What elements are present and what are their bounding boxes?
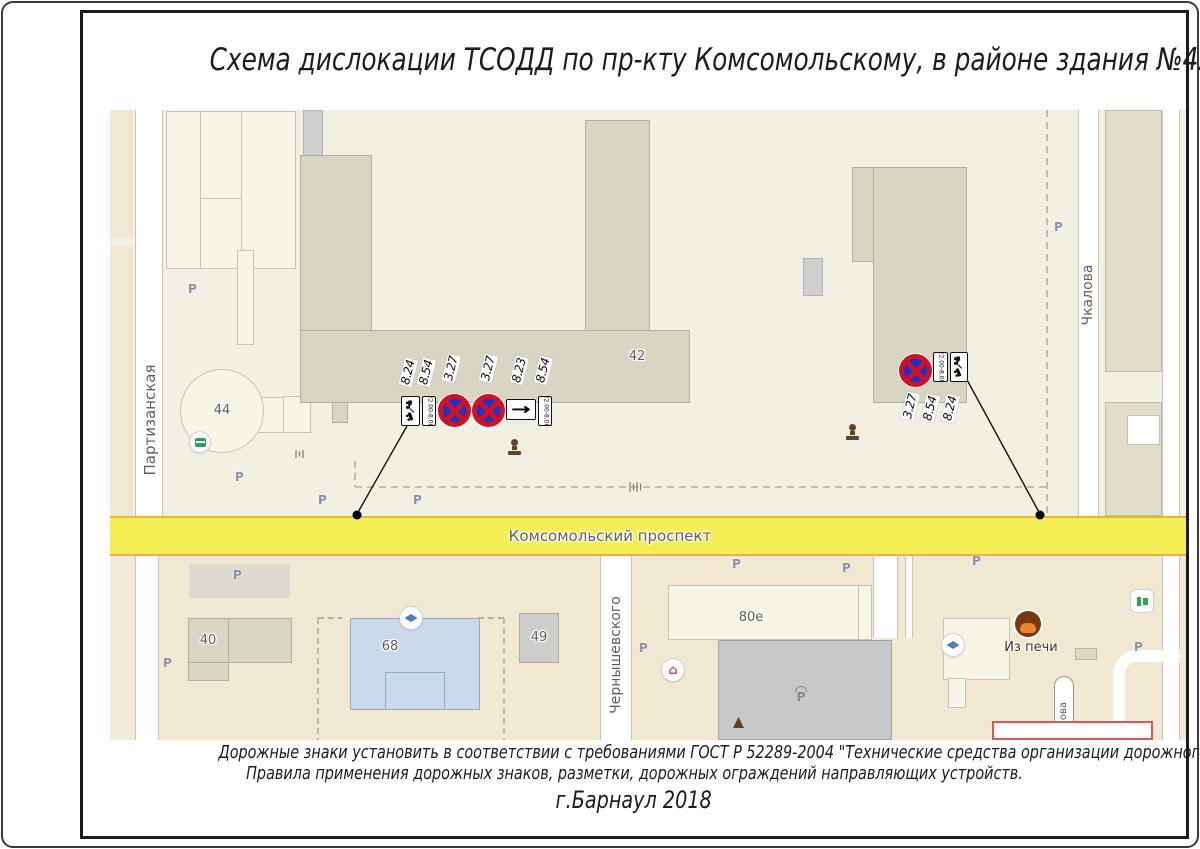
building-80e-wing	[858, 585, 872, 640]
parking-marker: P	[188, 282, 197, 296]
bus-stop-icon	[190, 432, 210, 452]
time-plate-text: 22.00-8.00	[542, 396, 548, 426]
parking-marker: P	[732, 557, 741, 571]
building-40-wing	[188, 662, 229, 681]
parking-marker: P	[1054, 220, 1063, 234]
building-68-notch	[385, 672, 445, 710]
building-40-wing	[228, 618, 292, 663]
time-plate-text: 22.00-8.00	[426, 396, 432, 426]
monument-icon	[507, 439, 521, 457]
scheme-sheet: { "title": "Схема дислокации ТСОДД по пр…	[0, 0, 1200, 849]
city-block	[200, 111, 242, 199]
time-plate-text: 22.00-8.00	[938, 352, 944, 382]
time-plate: 22.00-8.00	[538, 396, 552, 426]
street-label-partizanskaya: Партизанская	[141, 340, 157, 500]
leader-line-right	[966, 378, 1040, 514]
building-40-label: 40	[188, 633, 228, 648]
tall-building-wing	[852, 167, 875, 262]
right-block	[1105, 110, 1162, 372]
city-block	[166, 111, 201, 269]
building-49-label: 49	[519, 630, 559, 645]
street-label-chkalova: Чкалова	[1080, 240, 1096, 350]
graduation-cap-glyph	[405, 614, 418, 622]
footer-note-line1: Дорожные знаки установить в соответствии…	[84, 742, 1184, 763]
house-glyph: ⌂	[668, 664, 677, 677]
street-partizanskaya-lower	[135, 556, 159, 740]
right-block-court	[1127, 415, 1160, 445]
footer-city-year: г.Барнаул 2018	[84, 786, 1184, 814]
map-canvas: 44 42 40 68 49 ⌂ 80е P Из печи	[110, 110, 1186, 740]
zone-extent-arrow-plate: →	[506, 399, 536, 420]
bakery-icon	[1015, 611, 1041, 637]
edge-street	[1162, 110, 1180, 516]
parking-marker: P	[972, 554, 981, 568]
footer-note-line2: Правила применения дорожных знаков, разм…	[84, 763, 1184, 784]
tow-truck-plate	[401, 396, 420, 426]
shop-icon	[1131, 590, 1153, 612]
city-block	[241, 111, 296, 269]
building-42-left-wing	[300, 155, 372, 331]
tow-truck-icon	[954, 355, 965, 379]
gate-ticks	[296, 450, 641, 492]
parking-marker: P	[1134, 640, 1143, 654]
city-block	[237, 250, 254, 345]
bakery-label: Из печи	[991, 640, 1071, 655]
parking-marker: P	[639, 641, 648, 655]
bus-glyph	[195, 438, 206, 447]
parking-marker: P	[163, 656, 172, 670]
right-arrow-icon: →	[511, 401, 531, 417]
parking-marker: P	[318, 493, 327, 507]
tow-truck-icon	[405, 399, 416, 423]
street-label-komsomolsky: Комсомольский проспект	[460, 527, 760, 545]
building-44-label: 44	[202, 403, 242, 418]
building-42-right-wing	[585, 120, 650, 331]
bakery-building-wing	[948, 678, 966, 708]
bottle-glyph	[1143, 598, 1148, 605]
school-icon-2	[942, 634, 964, 656]
building-42-annex	[332, 402, 348, 423]
parking-marker: P	[233, 568, 242, 582]
parking-marker: P	[842, 561, 851, 575]
small-building	[1075, 648, 1097, 660]
school-icon	[400, 607, 422, 629]
city-block	[200, 198, 242, 269]
edge-building-strip	[110, 556, 133, 740]
map-callout-box	[992, 721, 1153, 740]
covered-parking-icon: P	[794, 686, 808, 704]
graduation-cap-glyph	[947, 641, 960, 649]
leader-line-left	[357, 426, 407, 514]
no-stopping-sign	[438, 394, 471, 427]
building-42-label: 42	[617, 349, 657, 364]
street-label-partial: ова	[1058, 686, 1070, 736]
tow-truck-plate	[950, 352, 968, 382]
parking-marker: P	[235, 470, 244, 484]
street-label-chernyshevskogo: Чернышевского	[608, 570, 624, 740]
edge-building-strip	[110, 246, 133, 516]
side-road-lane	[905, 556, 913, 638]
bottle-glyph	[1137, 597, 1141, 606]
building-80e-label: 80е	[731, 610, 771, 625]
time-plate: 22.00-8.00	[933, 352, 948, 382]
time-plate: 22.00-8.00	[422, 396, 436, 426]
no-stopping-sign	[472, 394, 505, 427]
side-road	[873, 556, 898, 638]
no-stopping-sign	[899, 354, 932, 387]
building-68-label: 68	[370, 639, 410, 654]
bread-glyph	[1020, 623, 1036, 633]
parking-marker: P	[413, 493, 422, 507]
monument-icon	[845, 424, 859, 442]
page-title: Схема дислокации ТСОДД по пр-кту Комсомо…	[84, 42, 1184, 78]
small-gray-building	[803, 258, 823, 296]
edge-building-strip	[110, 110, 133, 238]
house-icon: ⌂	[662, 659, 684, 681]
